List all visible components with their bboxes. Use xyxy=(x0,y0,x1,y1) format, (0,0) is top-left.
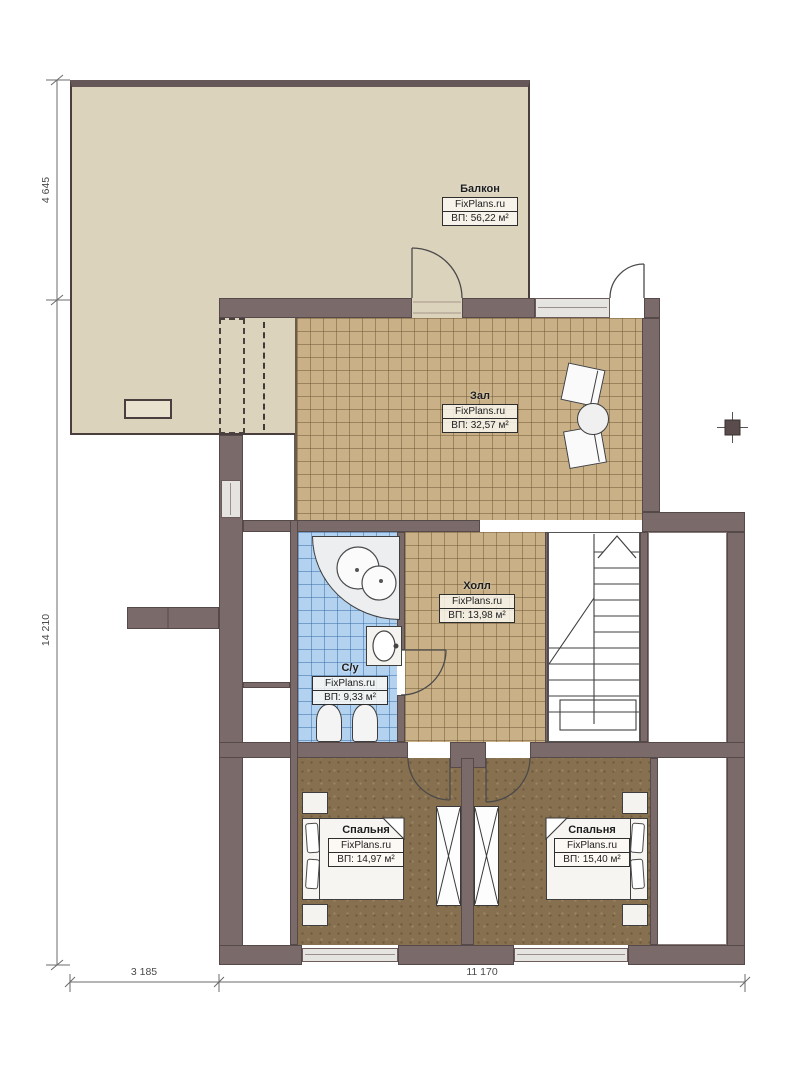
room-info-box: FixPlans.ru ВП: 14,97 м² xyxy=(328,838,404,867)
nightstand xyxy=(622,792,648,814)
room-area: ВП: 14,97 м² xyxy=(329,852,403,866)
room-info-box: FixPlans.ru ВП: 32,57 м² xyxy=(442,404,518,433)
wall-top-left xyxy=(219,298,412,318)
label-bedroom-left: Спальня FixPlans.ru ВП: 14,97 м² xyxy=(328,824,404,867)
room-area: ВП: 15,40 м² xyxy=(555,852,629,866)
pillow xyxy=(630,859,645,890)
room-name: Холл xyxy=(439,580,515,592)
room-name: Зал xyxy=(442,390,518,402)
wall-bottom-mid xyxy=(398,945,514,965)
wall-bedrooms-top-right xyxy=(530,742,745,758)
wall-strip-divider xyxy=(243,682,290,688)
label-balcony: Балкон FixPlans.ru ВП: 56,22 м² xyxy=(442,183,518,226)
wall-top-corner xyxy=(644,298,660,318)
door-arc-top-right xyxy=(610,264,644,298)
wall-stub-left xyxy=(127,607,219,629)
round-table xyxy=(577,403,609,435)
right-side-room xyxy=(648,532,727,945)
nightstand xyxy=(302,792,328,814)
room-name: С/у xyxy=(312,662,388,674)
wardrobe-right xyxy=(474,806,499,906)
wall-bottom-right xyxy=(628,945,745,965)
room-area: ВП: 9,33 м² xyxy=(313,690,387,704)
side-strip-floor xyxy=(243,435,295,945)
window-top xyxy=(535,298,610,318)
wall-strip-right xyxy=(290,520,298,945)
wall-bedroom-right-side xyxy=(650,758,658,945)
wall-top-mid xyxy=(462,298,535,318)
room-area: ВП: 13,98 м² xyxy=(440,608,514,622)
label-living-room: Зал FixPlans.ru ВП: 32,57 м² xyxy=(442,390,518,433)
room-info-box: FixPlans.ru ВП: 15,40 м² xyxy=(554,838,630,867)
wall-bath-hall-lower xyxy=(397,695,405,742)
brand-text: FixPlans.ru xyxy=(555,839,629,852)
brand-text: FixPlans.ru xyxy=(443,405,517,418)
wall-living-bottom xyxy=(243,520,480,532)
dimension-label-bottom-right: 11 170 xyxy=(466,966,497,978)
room-info-box: FixPlans.ru ВП: 13,98 м² xyxy=(439,594,515,623)
hidden-wall-under-balcony xyxy=(219,318,245,434)
hidden-edge-line xyxy=(263,322,265,430)
room-info-box: FixPlans.ru ВП: 56,22 м² xyxy=(442,197,518,226)
room-area: ВП: 32,57 м² xyxy=(443,418,517,432)
wardrobe-left xyxy=(436,806,461,906)
pillow xyxy=(305,823,320,854)
pillow xyxy=(630,823,645,854)
wall-bedrooms-top-left xyxy=(219,742,408,758)
stairwell xyxy=(548,532,640,742)
label-bathroom: С/у FixPlans.ru ВП: 9,33 м² xyxy=(312,662,388,705)
brand-text: FixPlans.ru xyxy=(313,677,387,690)
toilet xyxy=(316,704,342,742)
hall-floor xyxy=(405,532,545,742)
dimension-label-bottom-left: 3 185 xyxy=(131,966,157,978)
armchair-top xyxy=(560,362,605,407)
wall-hall-stairs xyxy=(545,532,548,742)
pillow xyxy=(305,859,320,890)
wall-stairs-right xyxy=(640,532,648,742)
chimney-marker xyxy=(717,412,748,443)
room-info-box: FixPlans.ru ВП: 9,33 м² xyxy=(312,676,388,705)
nightstand xyxy=(622,904,648,926)
label-hall: Холл FixPlans.ru ВП: 13,98 м² xyxy=(439,580,515,623)
wall-bottom-left xyxy=(219,945,302,965)
balcony-hatch xyxy=(124,399,172,419)
wall-right-upper xyxy=(642,318,660,512)
floor-plan: Балкон FixPlans.ru ВП: 56,22 м² Зал FixP… xyxy=(0,0,792,1080)
room-area: ВП: 56,22 м² xyxy=(443,211,517,225)
room-name: Спальня xyxy=(328,824,404,836)
room-name: Спальня xyxy=(554,824,630,836)
brand-text: FixPlans.ru xyxy=(443,198,517,211)
label-bedroom-right: Спальня FixPlans.ru ВП: 15,40 м² xyxy=(554,824,630,867)
nightstand xyxy=(302,904,328,926)
bidet xyxy=(352,704,378,742)
dimension-label-left-lower: 14 210 xyxy=(40,614,52,646)
brand-text: FixPlans.ru xyxy=(440,595,514,608)
wall-step xyxy=(642,512,745,532)
wall-bedroom-divider xyxy=(461,758,474,945)
window-bottom-left xyxy=(302,948,398,962)
window-left xyxy=(221,480,241,518)
window-bottom-right xyxy=(514,948,628,962)
room-name: Балкон xyxy=(442,183,518,195)
brand-text: FixPlans.ru xyxy=(329,839,403,852)
sink xyxy=(366,626,402,666)
dimension-label-left-upper: 4 645 xyxy=(40,177,52,203)
